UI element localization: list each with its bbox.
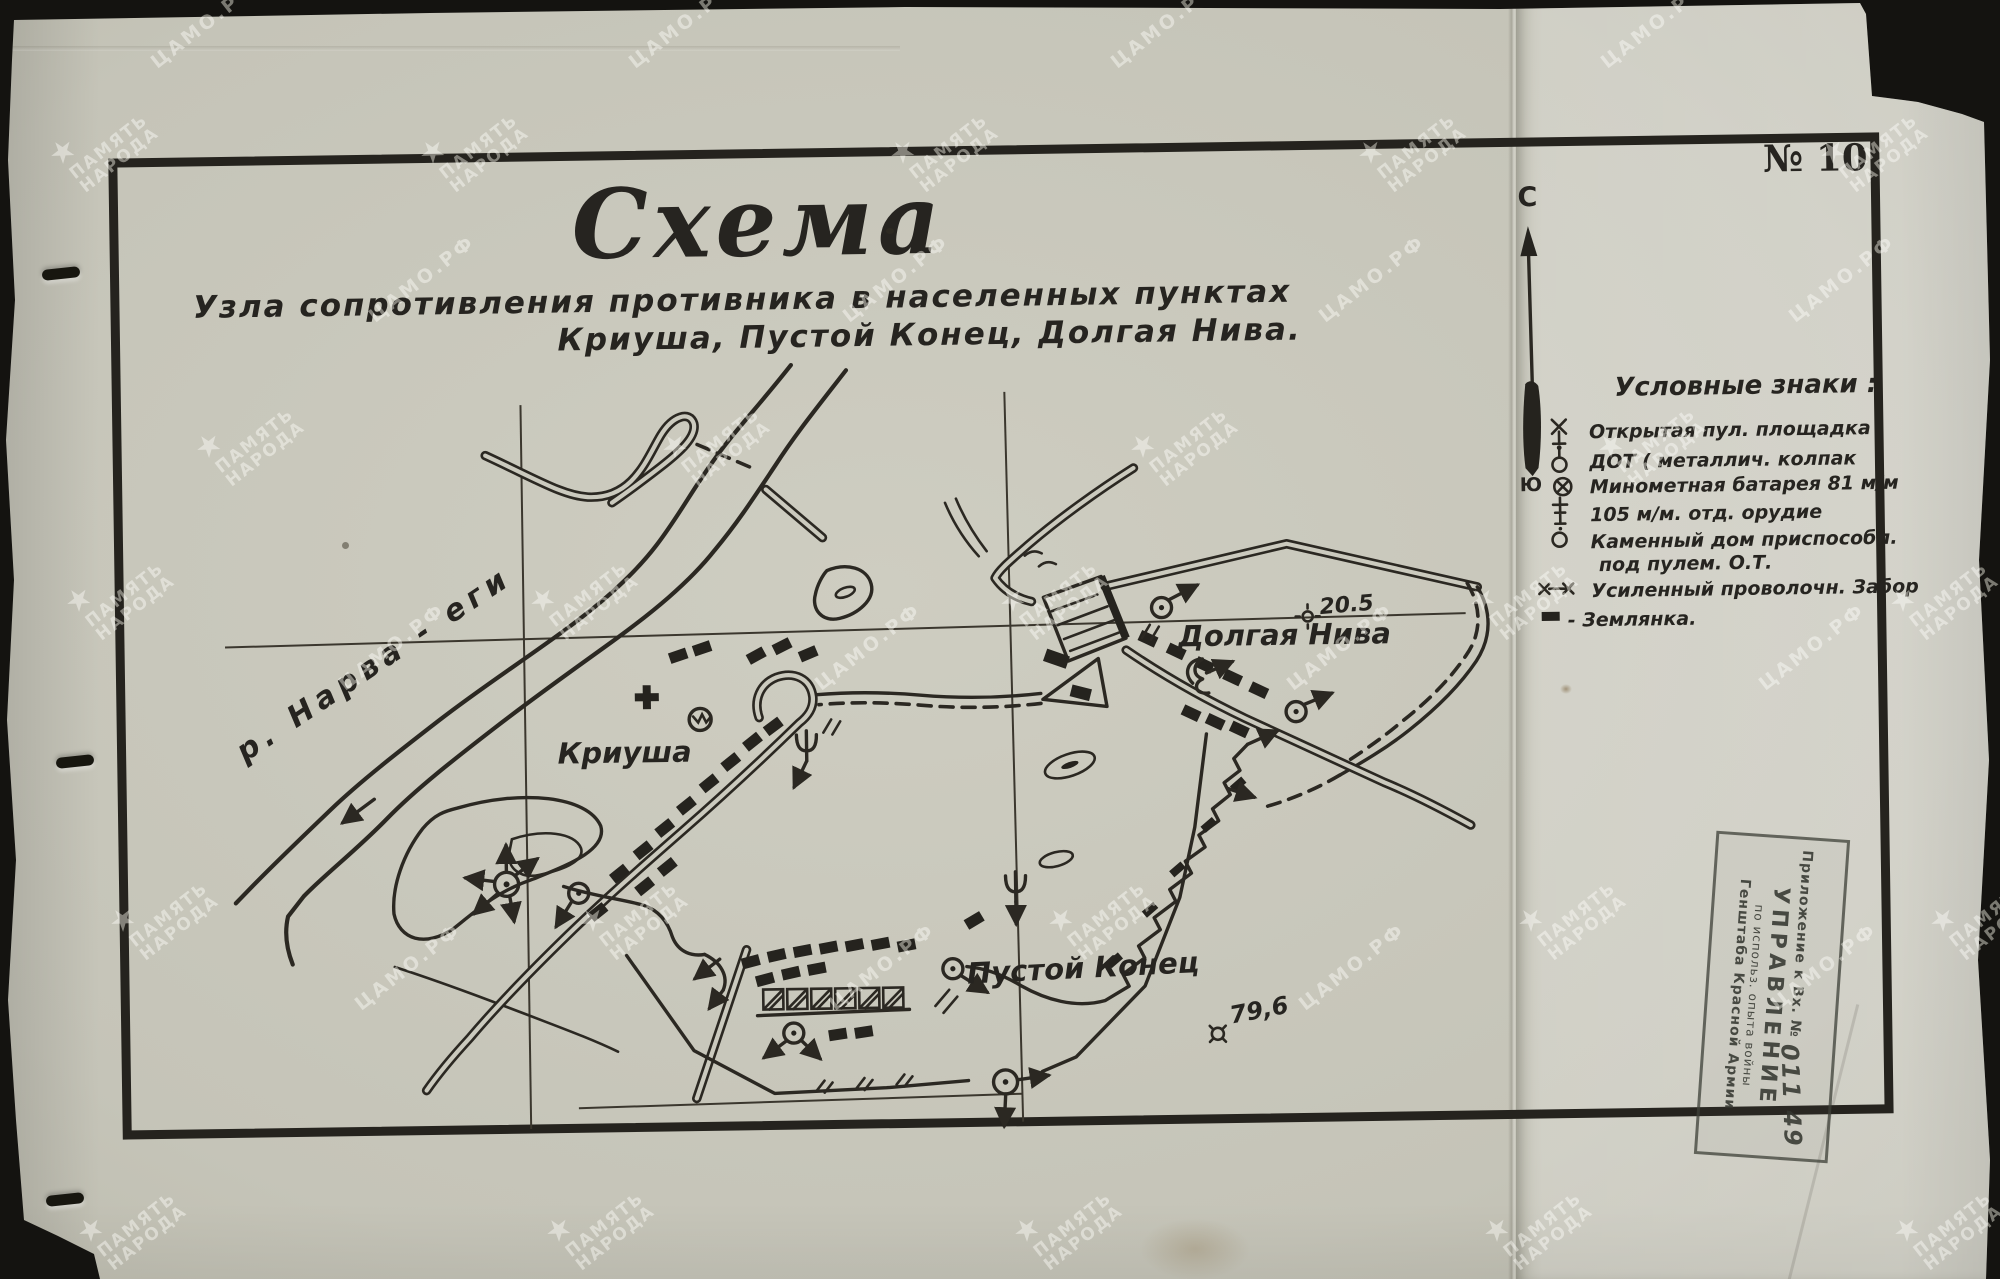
page-title: Схема [571, 163, 946, 282]
legend-title: Условные знаки : [1614, 369, 1877, 403]
fortified-building [1041, 576, 1127, 707]
stone-house-icon [1552, 533, 1566, 547]
defense-perimeter [561, 731, 1282, 1097]
stamp-box: Приложение к Вх. № 011 49 УПРАВЛЕНИЕ по … [1694, 831, 1850, 1164]
grid-lines [221, 385, 1473, 1133]
mg-platform-symbols [793, 728, 1026, 927]
archive-stamp: Приложение к Вх. № 011 49 УПРАВЛЕНИЕ по … [1695, 832, 1849, 1162]
legend-item-3: Минометная батарея 81 м/м [1590, 472, 1899, 499]
mortar-battery-icon [1554, 478, 1571, 495]
paper-sheet: Схема Узла сопротивления противника в на… [0, 0, 2000, 1279]
pillbox-icon [1552, 445, 1566, 472]
church-icon [635, 685, 659, 709]
elevation-point-796 [1210, 1026, 1226, 1042]
height-label-205: 20.5 [1319, 591, 1375, 620]
compass-south-label: Ю [1520, 474, 1543, 496]
village-label-dolgaya-niva: Долгая Нива [1178, 616, 1391, 653]
stone-house-row [757, 987, 909, 1015]
scanned-document: Схема Узла сопротивления противника в на… [0, 0, 2000, 1279]
legend-item-2: ДОТ ( металлич. колпак [1589, 447, 1856, 473]
legend-icons [1537, 420, 1574, 621]
village-label-kriusha: Криуша [557, 735, 692, 771]
sheet-number: № 10 [1763, 135, 1868, 181]
north-arrow [1520, 226, 1542, 476]
legend-item-7: - Землянка. [1568, 608, 1697, 632]
legend-item-1: Открытая пул. площадка [1589, 417, 1871, 443]
legend-item-5b: под пулем. О.Т. [1599, 552, 1773, 577]
stamp-handwritten-number: 011 49 [1775, 1043, 1807, 1148]
mg-platform-icon [1552, 420, 1566, 444]
legend-item-5: Каменный дом приспособл. [1590, 527, 1897, 554]
village-buildings [583, 628, 1274, 1045]
wire-fence-icon [1539, 583, 1573, 594]
compass-north-label: С [1517, 182, 1537, 213]
dugout-icon [1542, 612, 1560, 621]
gun-105-icon [1553, 498, 1567, 531]
legend-item-4: 105 м/м. отд. орудие [1590, 501, 1822, 526]
